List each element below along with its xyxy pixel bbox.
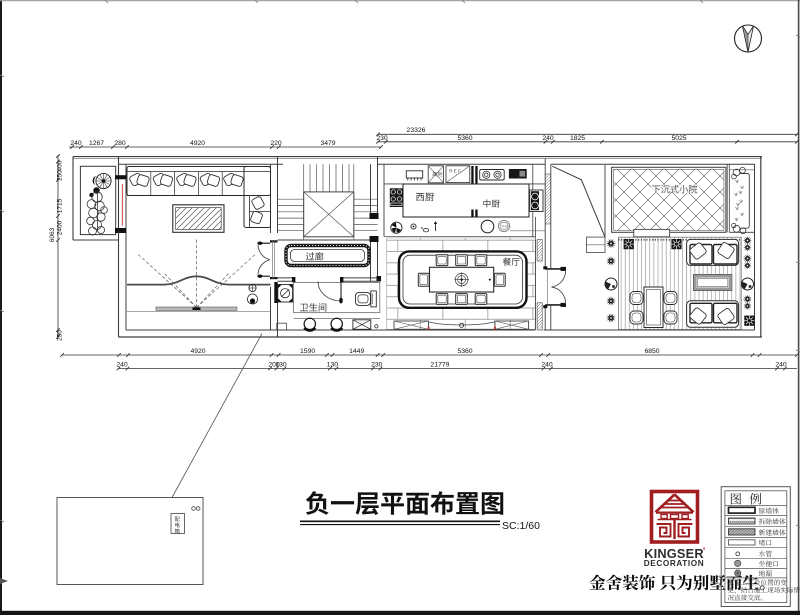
svg-text:240: 240 — [542, 135, 554, 142]
svg-text:1825: 1825 — [570, 135, 585, 142]
svg-text:240: 240 — [775, 361, 787, 368]
svg-text:5025: 5025 — [671, 135, 686, 142]
svg-text:240: 240 — [116, 361, 128, 368]
svg-text:1715: 1715 — [57, 198, 64, 213]
svg-text:3479: 3479 — [320, 140, 335, 147]
svg-text:R E F: R E F — [449, 169, 461, 174]
svg-text:6850: 6850 — [644, 348, 659, 355]
svg-text:400: 400 — [57, 160, 64, 171]
svg-text:6063: 6063 — [49, 227, 56, 242]
svg-text:5360: 5360 — [457, 135, 472, 142]
svg-text:DECORATION: DECORATION — [644, 559, 704, 568]
svg-text:1449: 1449 — [349, 348, 364, 355]
svg-text:250: 250 — [57, 330, 64, 341]
svg-text:130: 130 — [275, 361, 287, 368]
svg-text:220: 220 — [270, 140, 282, 147]
svg-text:240: 240 — [70, 140, 82, 147]
svg-text:2400: 2400 — [57, 220, 64, 235]
svg-text:SC:1/60: SC:1/60 — [502, 520, 540, 532]
svg-text:21779: 21779 — [431, 361, 450, 368]
svg-text:240: 240 — [541, 361, 553, 368]
svg-text:1267: 1267 — [89, 140, 104, 147]
svg-text:4920: 4920 — [190, 348, 205, 355]
svg-text:230: 230 — [371, 361, 383, 368]
svg-text:250: 250 — [57, 170, 64, 181]
svg-text:230: 230 — [376, 135, 388, 142]
svg-text:280: 280 — [114, 140, 126, 147]
svg-text:130: 130 — [327, 361, 339, 368]
svg-text:': ' — [703, 546, 705, 556]
svg-text:1590: 1590 — [300, 348, 315, 355]
svg-text:23326: 23326 — [407, 127, 426, 134]
svg-text:4920: 4920 — [190, 140, 205, 147]
svg-text:5360: 5360 — [457, 348, 472, 355]
